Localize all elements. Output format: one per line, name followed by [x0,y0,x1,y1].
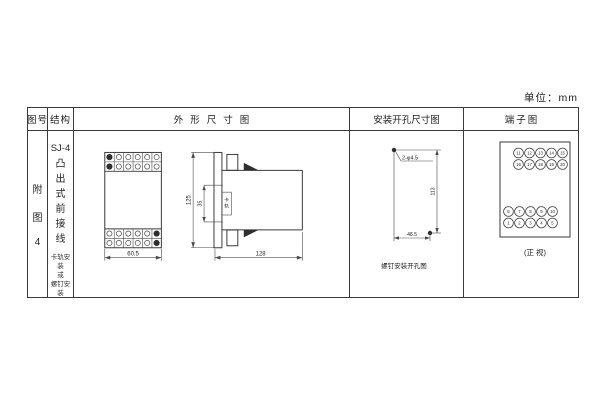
mounting-hole [428,231,432,235]
svg-text:13: 13 [538,151,543,156]
rail-label-char: 卡 [224,197,229,204]
figure-no-char: 附 [33,181,43,196]
svg-text:11: 11 [516,151,521,156]
terminal-caption: (正 视) [524,247,547,257]
terminal-circle: 8 [526,207,536,217]
svg-text:18: 18 [538,162,543,167]
dim-depth: 128 [256,251,267,257]
svg-text:14: 14 [549,151,554,156]
terminal-circle: 12 [525,148,535,158]
structure-type-label: 凸 出 式 前 接 线 [56,159,66,245]
terminal-circle: 1 [504,218,514,228]
dim-front-width: 60.5 [127,251,139,257]
header-structure: 结构 [48,108,74,131]
dim-horizontal: 48.5 [407,232,417,238]
svg-text:19: 19 [549,162,554,167]
structure-cell: SJ-4 凸 出 式 前 接 线 卡轨安装 或 螺钉安装 [48,131,74,297]
mount-note: 卡轨安装 或 螺钉安装 [48,253,73,297]
terminal-circle: 11 [514,148,524,158]
unit-label: 单位：mm [388,90,578,105]
svg-text:20: 20 [560,162,565,167]
terminal-circle: 13 [536,148,546,158]
mounting-drawing-cell: 2-φ4.5 113 48.5 螺钉安装开孔图 [350,131,464,297]
terminal-circle: 19 [547,160,557,170]
datasheet-page: 单位：mm 图号 结构 外形尺寸图 安装开孔尺寸图 端子图 附 图 4 SJ-4… [0,0,600,400]
terminal-circle: 10 [548,207,558,217]
rail-label-char: 轨 [224,203,229,210]
dim-rail: 35 [198,201,204,207]
dim-vertical: 113 [431,187,437,195]
terminal-circle: 17 [525,160,535,170]
svg-text:16: 16 [516,162,521,167]
svg-text:10: 10 [550,209,555,214]
mounting-hole-drawing: 2-φ4.5 113 48.5 螺钉安装开孔图 [350,131,464,297]
dim-height: 125 [187,194,193,205]
figure-no-char: 图 [33,209,43,224]
outline-drawing-svg: 60.5 125 [74,131,350,297]
hole-spec-label: 2-φ4.5 [402,156,418,162]
header-mounting: 安装开孔尺寸图 [350,108,464,131]
side-view: 125 35 卡 轨 [187,152,303,260]
model-label: SJ-4 [51,143,71,154]
terminal-circle: 4 [537,218,547,228]
terminal-circle: 2 [515,218,525,228]
figure-no-char: 4 [35,237,41,248]
terminal-circle: 6 [504,207,514,217]
svg-text:12: 12 [527,151,532,156]
terminal-circle: 14 [547,148,557,158]
figure-no-cell: 附 图 4 [28,131,48,297]
terminal-circle: 20 [558,160,568,170]
terminal-circle: 16 [514,160,524,170]
front-view: 60.5 [105,152,162,260]
svg-text:15: 15 [560,151,565,156]
terminal-circle: 15 [558,148,568,158]
terminal-diagram-cell: 11 12 13 14 15 16 17 18 19 20 6 7 8 9 10… [464,131,578,297]
outline-drawing-cell: 60.5 125 [74,131,350,297]
mounting-caption: 螺钉安装开孔图 [381,261,427,270]
terminal-circle: 7 [515,207,525,217]
spec-table: 图号 结构 外形尺寸图 安装开孔尺寸图 端子图 附 图 4 SJ-4 凸 出 式… [27,107,579,298]
terminal-circle: 5 [548,218,558,228]
terminal-circle: 18 [536,160,546,170]
terminal-circle: 3 [526,218,536,228]
terminal-circle: 9 [537,207,547,217]
header-terminal: 端子图 [464,108,578,131]
header-outline: 外形尺寸图 [74,108,350,131]
svg-text:17: 17 [527,162,532,167]
header-figure-no: 图号 [28,108,48,131]
terminal-diagram: 11 12 13 14 15 16 17 18 19 20 6 7 8 9 10… [464,131,578,297]
